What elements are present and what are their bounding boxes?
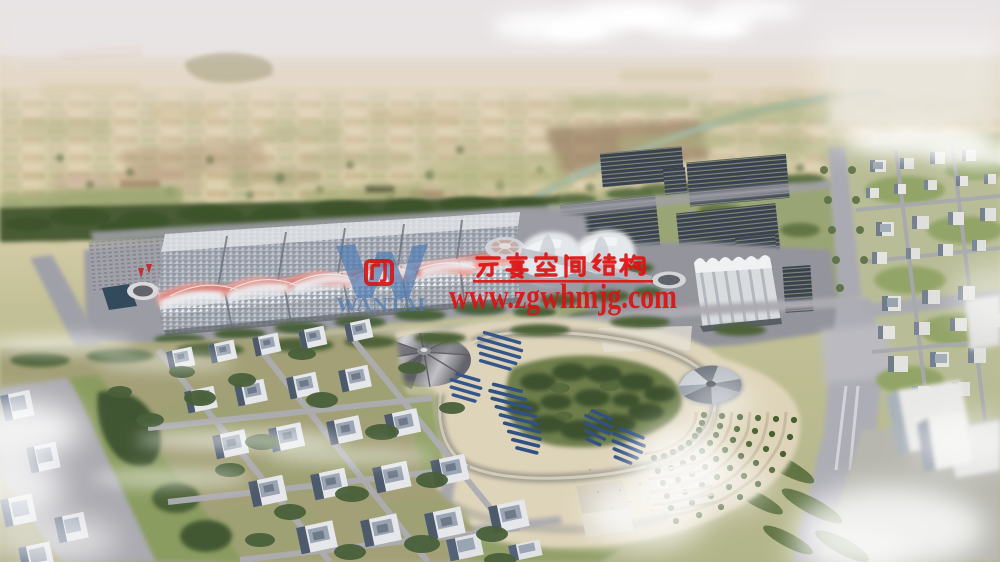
svg-text:www.zgwhmjg.com: www.zgwhmjg.com xyxy=(449,277,677,316)
svg-text:WANTAI: WANTAI xyxy=(336,294,426,316)
